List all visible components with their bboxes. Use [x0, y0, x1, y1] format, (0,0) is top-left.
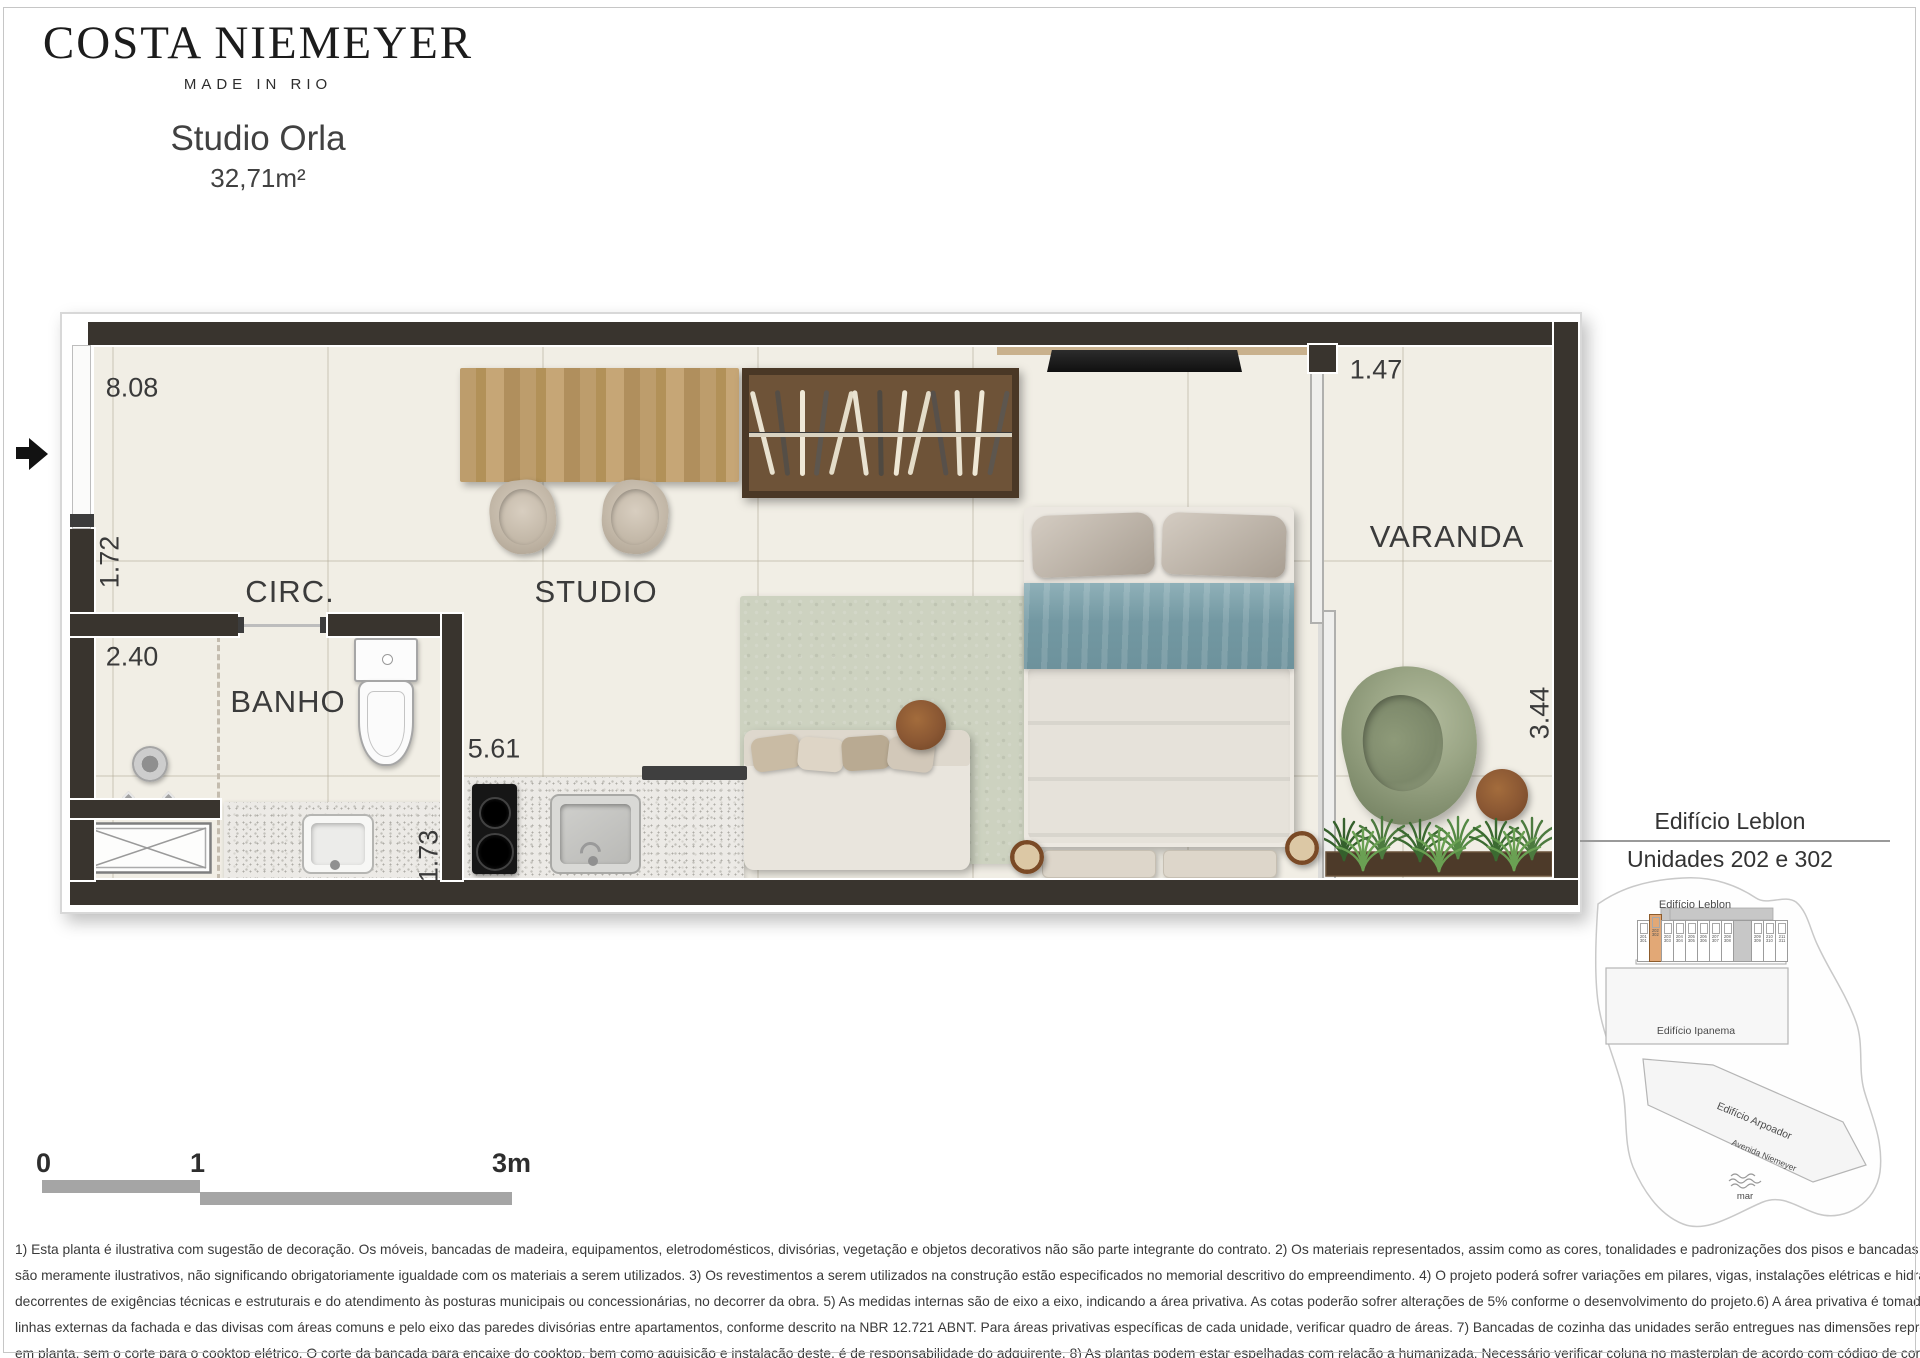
legend-building: Edifício Leblon — [1560, 808, 1900, 835]
header: COSTA NIEMEYER MADE IN RIO Studio Orla 3… — [38, 16, 478, 194]
banho-door-leaf — [244, 624, 320, 627]
wood-counter-desk — [460, 368, 739, 482]
dim-kitchen-length: 5.61 — [468, 734, 521, 765]
disclaimer-line-4: linhas externas da fachada e das divisas… — [15, 1315, 1910, 1341]
dim-varanda-depth: 3.44 — [1525, 687, 1556, 740]
bed-blue-runner — [1024, 583, 1294, 669]
wall-left — [70, 529, 94, 880]
toilet — [354, 638, 418, 766]
disclaimer-line-3: decorrentes de exigências técnicas e est… — [15, 1289, 1910, 1315]
bench-cushion-2 — [1163, 850, 1277, 878]
entrance-opening — [72, 345, 91, 529]
dim-banho-depth: 1.73 — [414, 830, 445, 883]
room-label-circ: CIRC. — [245, 574, 334, 610]
sitemap-unit-211: 211311 — [1775, 920, 1788, 962]
sitemap-sea-label: mar — [1737, 1191, 1753, 1202]
wall-right — [1554, 322, 1578, 905]
scale-label-1: 1 — [190, 1148, 205, 1179]
banho-door-jamb-right — [320, 617, 326, 633]
room-label-studio: STUDIO — [534, 574, 657, 610]
disclaimer: 1) Esta planta é ilustrativa com sugestã… — [15, 1237, 1910, 1358]
sitemap-units: 2013012023022033032043042053052063062073… — [1638, 920, 1788, 962]
entrance-arrow-tail — [16, 447, 30, 459]
side-table — [896, 700, 946, 750]
dim-varanda-width: 1.47 — [1350, 355, 1403, 386]
legend: Edifício Leblon Unidades 202 e 302 — [1560, 808, 1900, 873]
cooktop — [472, 784, 517, 874]
shower-partition-dashed — [217, 636, 220, 880]
bed-duvet — [1028, 669, 1290, 843]
bed-pillow-left — [1031, 512, 1155, 578]
wall-bottom — [70, 880, 1578, 905]
entrance-door-jamb — [70, 514, 94, 527]
scale-label-3m: 3m — [492, 1148, 531, 1179]
varanda-plants — [1324, 814, 1554, 880]
brand-logo: COSTA NIEMEYER — [38, 16, 478, 70]
varanda-glass-leaf-upper — [1310, 372, 1324, 624]
dim-circ-height: 1.72 — [95, 536, 126, 589]
brand-tagline: MADE IN RIO — [38, 76, 478, 93]
shaft-box — [82, 822, 212, 874]
wardrobe-rail — [749, 432, 1012, 437]
pouf-left — [1010, 840, 1044, 874]
legend-units: Unidades 202 e 302 — [1560, 846, 1900, 873]
wall-varanda-stub — [1309, 345, 1336, 372]
sofa-pillow-3 — [841, 734, 891, 771]
scale-bar-segment-1 — [42, 1180, 200, 1193]
room-label-banho: BANHO — [230, 684, 345, 720]
legend-rule — [1570, 840, 1890, 842]
wall-banho-vertical — [442, 614, 462, 880]
bench-cushion-1 — [1042, 850, 1156, 878]
kitchen-ledge — [642, 766, 747, 780]
tv — [1047, 350, 1242, 372]
disclaimer-line-1: 1) Esta planta é ilustrativa com sugestã… — [15, 1237, 1910, 1263]
sitemap: Edifício Leblon Edifício Ipanema Edifíci… — [1588, 872, 1920, 1264]
wall-banho-left — [70, 614, 238, 636]
bed-bench — [1042, 850, 1277, 878]
sofa-pillow-1 — [750, 733, 802, 773]
pouf-right — [1285, 831, 1319, 865]
sitemap-leblon-label: Edifício Leblon — [1659, 899, 1731, 911]
unit-area: 32,71m² — [38, 163, 478, 194]
scale-label-0: 0 — [36, 1148, 51, 1179]
banho-faucet — [330, 860, 340, 870]
toilet-bowl — [358, 680, 414, 766]
page-title: Studio Orla — [38, 119, 478, 159]
disclaimer-line-5: em planta, sem o corte para o cooktop el… — [15, 1341, 1910, 1358]
dim-main-width: 8.08 — [106, 373, 159, 404]
entrance-arrow-head — [29, 438, 64, 470]
room-label-varanda: VARANDA — [1370, 519, 1525, 555]
sitemap-ipanema-label: Edifício Ipanema — [1657, 1025, 1735, 1037]
floor-plan: CIRC. STUDIO BANHO VARANDA 8.08 1.47 1.7… — [60, 312, 1582, 914]
sofa-pillow-2 — [797, 736, 846, 773]
shower-head-icon — [132, 746, 168, 782]
dim-shower-width: 2.40 — [106, 642, 159, 673]
bed-pillow-right — [1161, 512, 1287, 578]
toilet-tank — [354, 638, 418, 682]
wall-top — [88, 322, 1578, 345]
scale-bar-segment-2 — [200, 1192, 512, 1205]
brochure-page: COSTA NIEMEYER MADE IN RIO Studio Orla 3… — [0, 0, 1920, 1358]
sitemap-corridor — [1733, 920, 1752, 962]
wall-shaft — [70, 800, 220, 818]
wardrobe — [742, 368, 1019, 498]
disclaimer-line-2: são meramente ilustrativos, não signific… — [15, 1263, 1910, 1289]
bed — [1024, 507, 1294, 847]
